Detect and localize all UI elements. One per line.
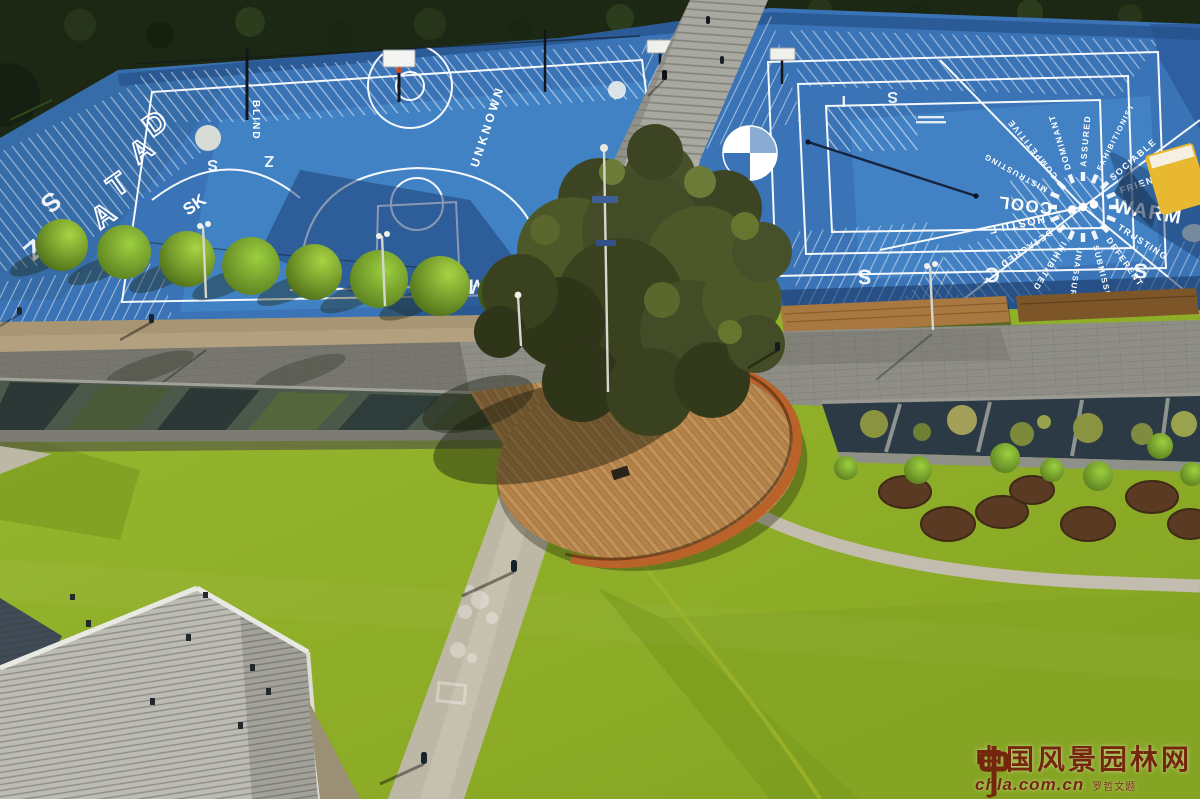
planted-island [1010, 422, 1034, 446]
svg-text:S: S [887, 88, 898, 105]
watermark-calligraphy-credit: 罗哲文题 [1092, 783, 1136, 793]
planted-island [860, 410, 888, 438]
tree [97, 225, 151, 279]
tree [159, 231, 215, 287]
tree [286, 244, 342, 300]
chla-logo-icon [975, 746, 1013, 798]
planted-island [1073, 413, 1103, 443]
tree [222, 237, 280, 295]
painted-disc [195, 125, 221, 151]
aerial-park-photo: BLIND UNKNOWN D A T A SK M M F I Z S C [0, 0, 1200, 799]
planted-island [947, 405, 977, 435]
tree [410, 256, 470, 316]
planted-island [913, 423, 931, 441]
svg-text:I: I [842, 92, 846, 109]
tree [36, 219, 88, 271]
planted-island [1037, 415, 1051, 429]
svg-text:C: C [984, 262, 1000, 286]
scene-canvas: BLIND UNKNOWN D A T A SK M M F I Z S C [0, 0, 1200, 799]
tree [350, 250, 408, 308]
svg-text:S: S [207, 156, 218, 173]
painted-disc [608, 81, 626, 99]
svg-text:S: S [857, 265, 872, 288]
word-blind: BLIND [250, 100, 261, 141]
watermark: 中国风景园林网 chla.com.cn 罗哲文题 [975, 746, 1192, 793]
planted-island [1171, 411, 1197, 437]
svg-text:Z: Z [264, 152, 274, 169]
